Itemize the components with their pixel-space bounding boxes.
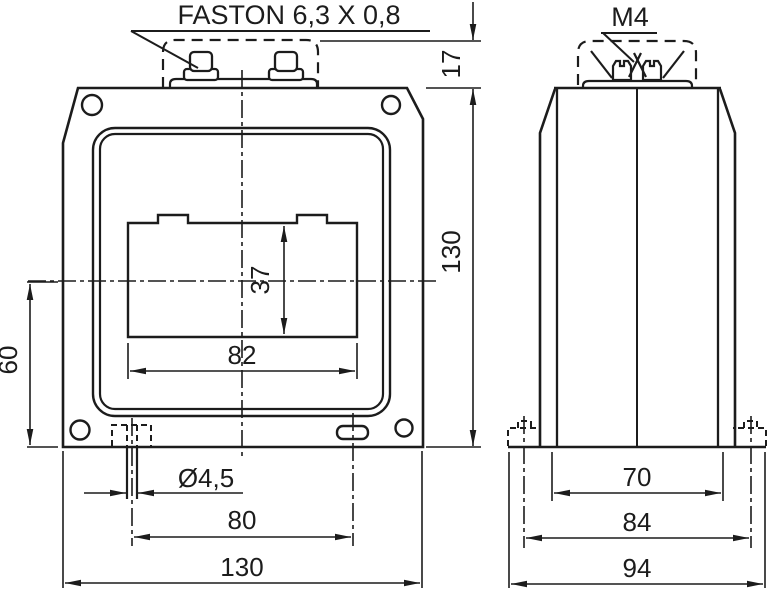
dim-flange-depth: 84	[526, 507, 749, 538]
dim-body-height-text: 130	[436, 230, 466, 273]
dim-flange-depth-text: 84	[623, 507, 652, 537]
screw-clamp-stroke-outer-left	[591, 51, 612, 78]
side-view: M4 70 84 94	[508, 2, 766, 588]
dim-window-height: 37	[245, 226, 284, 334]
dim-center-to-bottom: 60	[0, 282, 58, 447]
faston-tab-left	[184, 52, 218, 80]
dim-body-depth: 70	[552, 452, 723, 501]
dimension-drawing: FASTON 6,3 X 0,8 17 130 60 37	[0, 0, 768, 589]
thread-label: M4	[611, 2, 649, 32]
dim-pin-spacing: 80	[134, 505, 351, 537]
corner-hole-bottom-left	[71, 421, 90, 440]
terminal-screw-right	[643, 61, 661, 80]
corner-hole-top-left	[82, 95, 102, 115]
corner-hole-top-right	[382, 96, 400, 114]
dim-pin-diameter: Ø4,5	[84, 463, 243, 493]
side-foot-right-hidden	[733, 421, 766, 446]
dim-body-depth-text: 70	[623, 462, 652, 492]
dim-body-height: 130	[426, 89, 481, 447]
dim-pin-spacing-text: 80	[228, 505, 257, 535]
side-left-shoulder	[540, 89, 555, 446]
faston-leader-line	[131, 31, 198, 68]
dim-terminal-height-text: 17	[436, 50, 466, 79]
dim-window-height-text: 37	[245, 266, 275, 295]
front-view: FASTON 6,3 X 0,8 17 130 60 37	[0, 0, 481, 588]
faston-tab-right	[269, 52, 303, 80]
side-right-shoulder	[720, 89, 735, 446]
dim-window-width-text: 82	[228, 340, 257, 370]
dim-body-width-text: 130	[220, 552, 263, 582]
faston-label: FASTON 6,3 X 0,8	[177, 0, 400, 30]
terminal-screw-left	[613, 61, 631, 80]
engineering-drawing-sheet: FASTON 6,3 X 0,8 17 130 60 37	[0, 0, 768, 589]
screw-clamp-stroke-outer-right	[663, 51, 684, 78]
body-outline	[63, 88, 423, 447]
corner-hole-bottom-right	[396, 420, 413, 437]
dim-overall-depth-text: 94	[623, 553, 652, 583]
dim-center-to-bottom-text: 60	[0, 346, 23, 375]
dim-pin-diameter-text: Ø4,5	[178, 463, 234, 493]
thread-leader-line	[603, 33, 634, 62]
